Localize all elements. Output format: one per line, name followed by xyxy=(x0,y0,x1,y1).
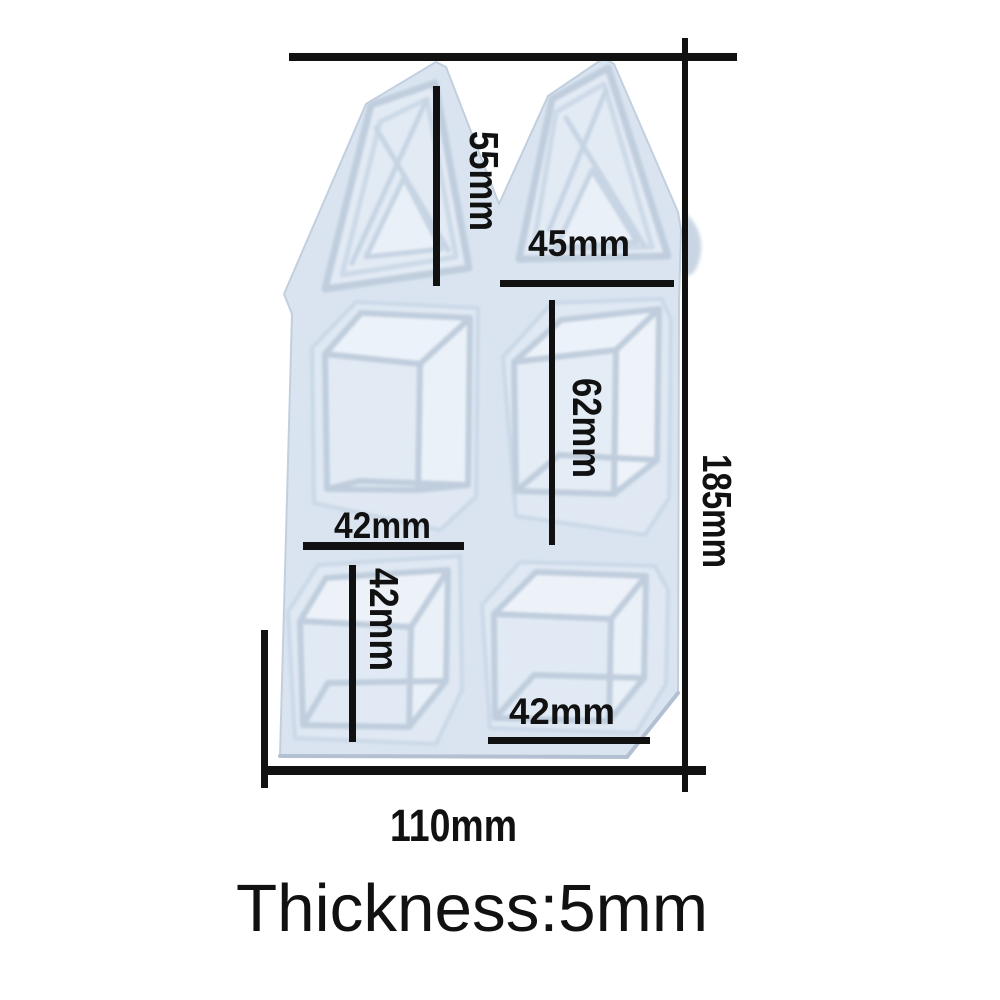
svg-text:55mm: 55mm xyxy=(461,131,507,231)
svg-text:42mm: 42mm xyxy=(361,568,407,671)
svg-text:62mm: 62mm xyxy=(564,378,610,478)
svg-text:185mm: 185mm xyxy=(694,454,740,568)
svg-text:110mm: 110mm xyxy=(390,800,517,851)
svg-text:45mm: 45mm xyxy=(528,223,630,264)
svg-text:Thickness:5mm: Thickness:5mm xyxy=(236,871,708,946)
svg-text:42mm: 42mm xyxy=(334,505,431,546)
svg-text:42mm: 42mm xyxy=(509,691,615,732)
